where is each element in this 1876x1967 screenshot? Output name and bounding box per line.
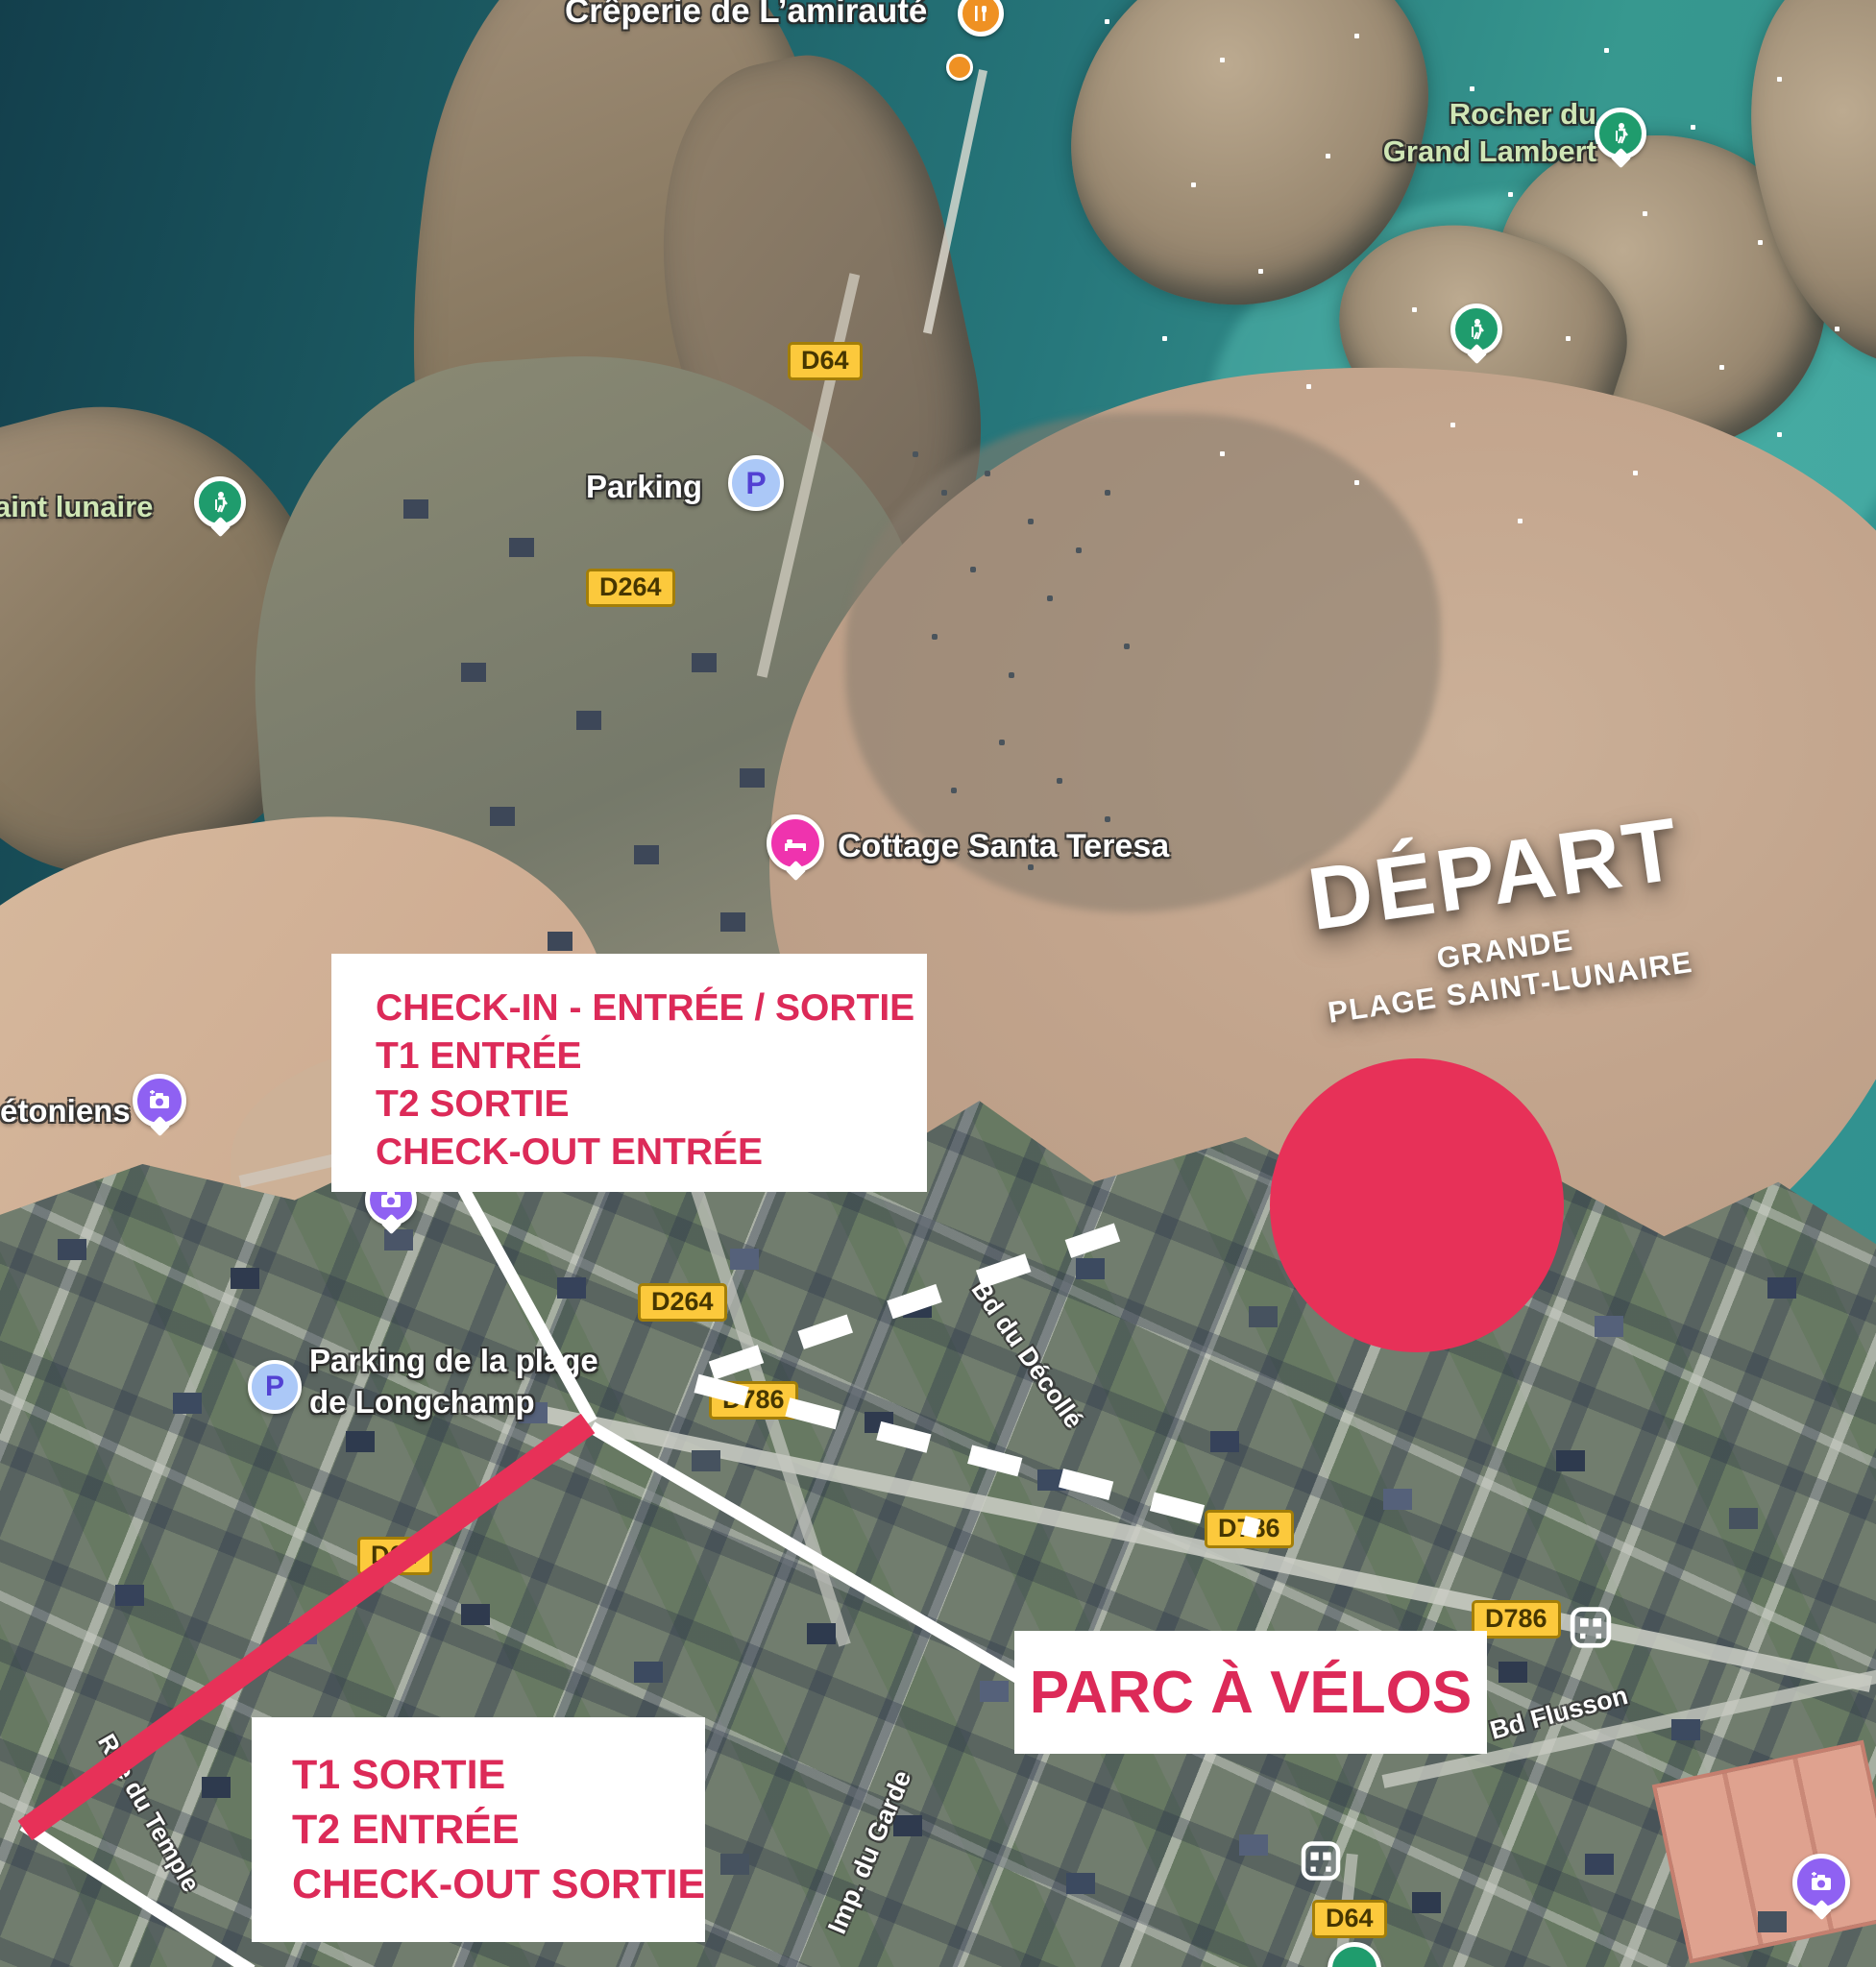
bike-park-box: PARC À VÉLOS	[1014, 1631, 1487, 1754]
checkin-line-3: T2 SORTIE	[376, 1081, 927, 1129]
checkin-line-4: CHECK-OUT ENTRÉE	[376, 1129, 927, 1177]
map-canvas[interactable]: D64 D264 D264 D786 D786 D786 D64 D64	[0, 0, 1876, 1967]
connector-line-exit	[23, 1825, 252, 1967]
connector-line-checkin	[459, 1181, 592, 1421]
exit-line-1: T1 SORTIE	[292, 1748, 705, 1803]
exit-info-box: T1 SORTIE T2 ENTRÉE CHECK-OUT SORTIE	[252, 1717, 705, 1942]
bike-park-label: PARC À VÉLOS	[1030, 1659, 1472, 1727]
route-overlay	[0, 0, 1876, 1967]
exit-line-3: CHECK-OUT SORTIE	[292, 1858, 705, 1912]
exit-line-2: T2 ENTRÉE	[292, 1803, 705, 1858]
checkin-line-1: CHECK-IN - ENTRÉE / SORTIE	[376, 984, 927, 1032]
connector-line-bikepark	[592, 1427, 1020, 1679]
checkin-info-box: CHECK-IN - ENTRÉE / SORTIE T1 ENTRÉE T2 …	[331, 954, 927, 1192]
checkin-line-2: T1 ENTRÉE	[376, 1032, 927, 1081]
dashed-route-path	[684, 1232, 1258, 1529]
